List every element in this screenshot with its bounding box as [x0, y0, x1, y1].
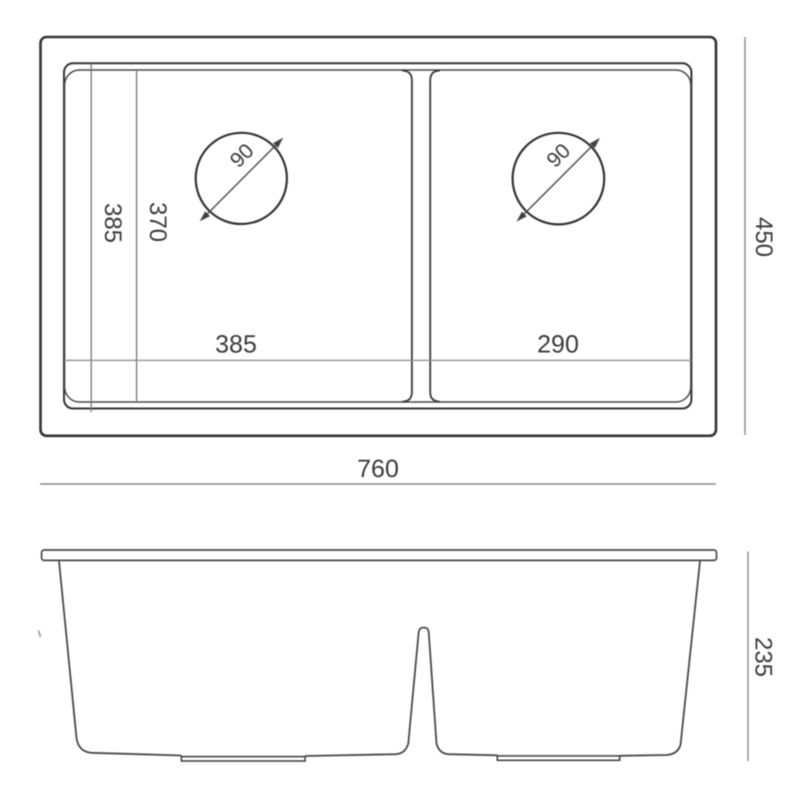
- svg-text:385: 385: [99, 203, 126, 243]
- svg-text:290: 290: [537, 331, 579, 359]
- svg-text:760: 760: [357, 455, 399, 483]
- svg-text:235: 235: [750, 637, 777, 677]
- svg-text:385: 385: [215, 331, 257, 359]
- svg-text:370: 370: [144, 202, 171, 242]
- svg-text:450: 450: [750, 217, 777, 257]
